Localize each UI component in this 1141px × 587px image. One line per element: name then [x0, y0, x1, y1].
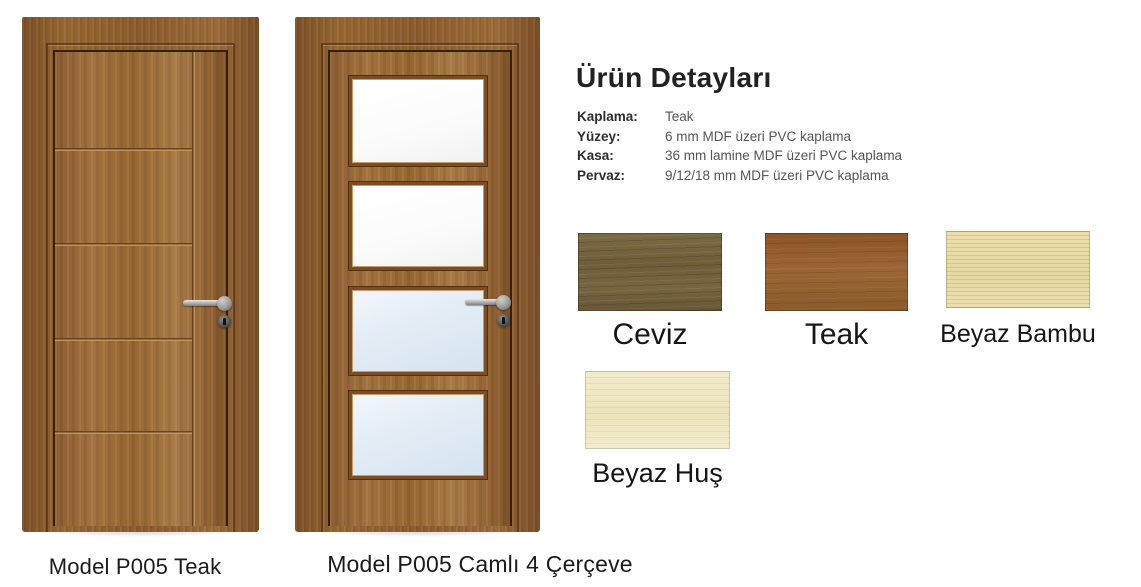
spec-label: Pervaz:: [577, 166, 665, 186]
door-leaf: [53, 50, 228, 526]
spec-row-kaplama: Kaplama: Teak: [577, 107, 902, 127]
glass-pane-4: [349, 391, 487, 479]
swatch-beyaz-hus: [585, 371, 730, 449]
spec-value: 9/12/18 mm MDF üzeri PVC kaplama: [665, 166, 889, 186]
details-title: Ürün Detayları: [576, 62, 772, 94]
spec-value: Teak: [665, 107, 694, 127]
door-image-p005-glazed: [295, 17, 540, 532]
glass-pane-2: [349, 182, 487, 270]
spec-label: Kasa:: [577, 146, 665, 166]
door-handle-rosette: [496, 295, 511, 310]
door-groove: [55, 243, 192, 246]
door-keyhole: [218, 315, 231, 328]
door-groove-vertical: [192, 52, 195, 526]
spec-label: Kaplama:: [577, 107, 665, 127]
door-leaf: [328, 50, 512, 526]
swatch-label-beyaz-bambu: Beyaz Bambu: [936, 320, 1100, 349]
spec-value: 6 mm MDF üzeri PVC kaplama: [665, 127, 851, 147]
product-sheet: Model P005 Teak Model P005 Camlı 4 Çerçe…: [0, 0, 1141, 587]
swatch-beyaz-bambu: [946, 231, 1090, 308]
door-caption-1: Model P005 Teak: [15, 554, 255, 580]
door-keyhole: [497, 314, 510, 327]
door-image-p005-teak: [22, 17, 259, 532]
swatch-label-ceviz: Ceviz: [578, 318, 722, 352]
swatch-label-teak: Teak: [765, 318, 908, 352]
swatch-teak: [765, 233, 908, 311]
door-handle-rosette: [217, 296, 232, 311]
door-groove: [55, 148, 192, 151]
spec-table: Kaplama: Teak Yüzey: 6 mm MDF üzeri PVC …: [577, 107, 902, 185]
spec-value: 36 mm lamine MDF üzeri PVC kaplama: [665, 146, 902, 166]
spec-row-yuzey: Yüzey: 6 mm MDF üzeri PVC kaplama: [577, 127, 902, 147]
swatch-label-beyaz-hus: Beyaz Huş: [585, 458, 730, 489]
spec-row-kasa: Kasa: 36 mm lamine MDF üzeri PVC kaplama: [577, 146, 902, 166]
spec-row-pervaz: Pervaz: 9/12/18 mm MDF üzeri PVC kaplama: [577, 166, 902, 186]
swatch-ceviz: [578, 233, 722, 311]
glass-pane-1: [349, 76, 487, 166]
door-groove: [55, 338, 192, 341]
door-caption-2: Model P005 Camlı 4 Çerçeve: [290, 551, 670, 578]
door-groove: [55, 431, 192, 434]
spec-label: Yüzey:: [577, 127, 665, 147]
